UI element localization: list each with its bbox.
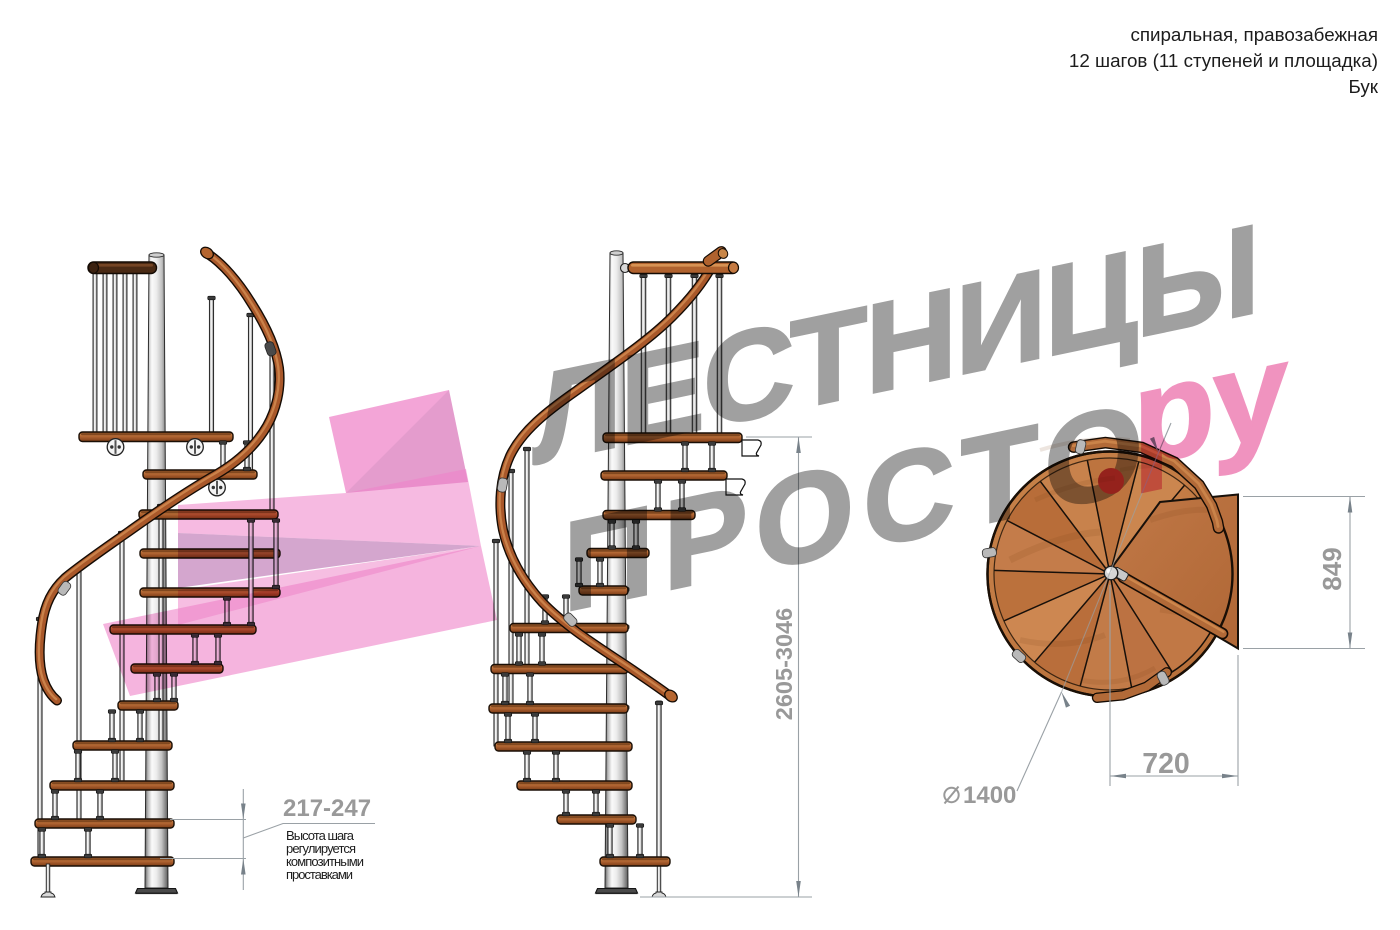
svg-text:849: 849 — [1317, 547, 1347, 590]
svg-text:2605-3046: 2605-3046 — [771, 608, 797, 720]
svg-text:1400: 1400 — [963, 782, 1016, 809]
svg-text:720: 720 — [1142, 748, 1190, 780]
svg-text:Высота шагарегулируетсякомпози: Высота шагарегулируетсякомпозитнымипрост… — [286, 828, 364, 882]
svg-text:217-247: 217-247 — [283, 795, 371, 822]
